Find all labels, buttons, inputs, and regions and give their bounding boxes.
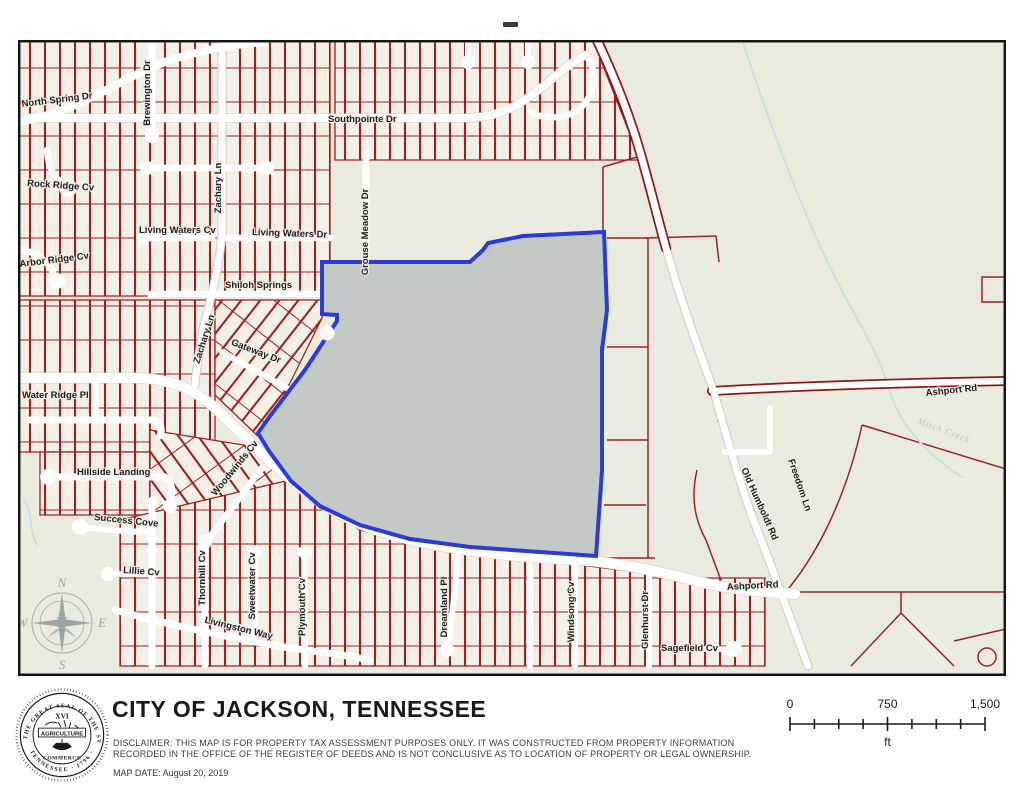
street-label-hillside-landing: Hillside Landing [77,467,151,478]
scale-bar-ticks [790,717,985,731]
parcel-notch-bulb [320,326,335,341]
tennessee-state-seal: THE GREAT SEAL OF THE STATE OF TENNESSEE… [13,686,111,784]
compass-north: N [57,575,68,590]
street-label-living-waters-cv: Living Waters Cv [139,225,216,236]
street-label-glenhurst-dr: Glenhurst Dr [640,591,651,649]
disclaimer-text: DISCLAIMER: THIS MAP IS FOR PROPERTY TAX… [113,738,751,760]
seal-boat [52,739,72,750]
street-label-sagefield-cv: Sagefield Cv [661,643,719,654]
seal-roman-numeral: XVI [55,711,69,720]
scale-unit-label: ft [884,735,891,749]
street-label-dreamland-pl: Dreamland Pl [439,577,450,638]
seal-commerce-label: COMMERCE [43,756,81,762]
street-label-brewington-dr: Brewington Dr [142,60,153,126]
scale-end-label: 1,500 [970,697,1000,711]
street-label-southpointe-dr: Southpointe Dr [328,114,397,125]
seal-agriculture-label: AGRICULTURE [41,732,83,738]
scale-bar: 0 750 1,500 ft [772,690,1004,760]
scale-middle-label: 750 [877,697,897,711]
compass-south: S [59,657,66,672]
street-label-grouse-meadow-dr: Grouse Meadow Dr [360,188,371,275]
seal-ring-top-text: THE GREAT SEAL OF THE STATE OF [23,703,101,743]
street-label-zachary-ln-upper: Zachary Ln [213,162,224,213]
window-dash-marker [503,22,518,27]
map-canvas[interactable]: N E S W North Spring DrBrewington DrSout… [18,40,1006,676]
scale-start-label: 0 [787,697,794,711]
map-date: MAP DATE: August 20, 2019 [113,768,228,778]
compass-east: E [97,615,106,630]
map-frame: N E S W North Spring DrBrewington DrSout… [18,40,1006,676]
svg-text:THE GREAT SEAL OF THE STATE OF: THE GREAT SEAL OF THE STATE OF [23,703,101,743]
street-label-shiloh-springs: Shiloh Springs [225,280,292,291]
footer: THE GREAT SEAL OF THE STATE OF TENNESSEE… [0,676,1024,790]
page: N E S W North Spring DrBrewington DrSout… [0,0,1024,790]
street-label-windsong-cv: Windsong Cv [566,581,577,642]
street-label-thornhill-cv: Thornhill Cv [197,550,208,606]
street-label-sweetwater-cv: Sweetwater Cv [247,552,258,620]
street-label-plymouth-cv: Plymouth Cv [297,577,308,636]
street-label-water-ridge-pl: Water Ridge Pl [22,390,89,401]
map-title: CITY OF JACKSON, TENNESSEE [112,696,486,723]
